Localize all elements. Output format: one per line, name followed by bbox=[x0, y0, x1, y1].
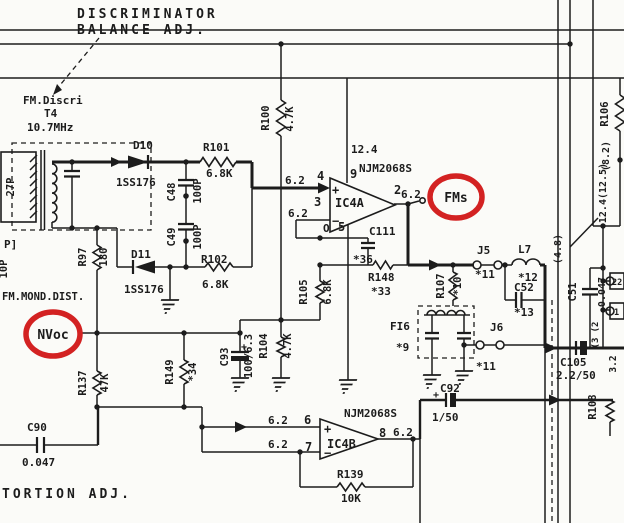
label-v-3-2: 3.2 bbox=[608, 355, 619, 372]
junction-dot bbox=[94, 404, 99, 409]
junction-dot bbox=[405, 201, 410, 206]
label-ic4a: IC4A bbox=[335, 196, 365, 210]
label-c52-val: *13 bbox=[514, 306, 534, 319]
label-r104: R104 bbox=[258, 333, 270, 358]
label-v-12-4: 12.4 bbox=[351, 143, 378, 156]
label-c48-val: 100P bbox=[192, 178, 204, 203]
arrow-icon bbox=[549, 395, 561, 406]
label-d10: D10 bbox=[133, 139, 153, 152]
arrow-icon bbox=[111, 157, 122, 167]
label-r148: R148 bbox=[368, 271, 395, 284]
label-c51: C51 bbox=[567, 283, 579, 302]
label-v-4-8: (4.8) bbox=[553, 234, 564, 264]
label-r105: R105 bbox=[298, 279, 310, 304]
junction-dot bbox=[278, 317, 283, 322]
junction-dot bbox=[450, 262, 455, 267]
label-plus-b: + bbox=[324, 422, 331, 436]
c92-plate-solid bbox=[450, 393, 456, 407]
label-minus-b: − bbox=[324, 446, 331, 460]
arrow-icon bbox=[429, 260, 441, 271]
d10-triangle bbox=[128, 156, 148, 169]
label-c111-val: *36 bbox=[353, 253, 373, 266]
l7-coil bbox=[512, 259, 540, 265]
schematic-page: DISCRIMINATORBALANCE ADJ.TORTION ADJ.FM.… bbox=[0, 0, 624, 523]
labels-layer: DISCRIMINATORBALANCE ADJ.TORTION ADJ.FM.… bbox=[0, 7, 622, 505]
junction-dot bbox=[94, 330, 99, 335]
label-c105-val: 2.2/50 bbox=[556, 369, 596, 382]
label-j6: J6 bbox=[490, 321, 504, 334]
schematic: DISCRIMINATORBALANCE ADJ.TORTION ADJ.FM.… bbox=[0, 0, 624, 523]
label-pin4: 4 bbox=[317, 169, 324, 183]
label-c93-val: 100/6.3 bbox=[243, 334, 255, 378]
junction-dots bbox=[69, 41, 622, 454]
label-r102-val: 6.8K bbox=[202, 278, 229, 291]
label-v-8-2: (8.2) bbox=[601, 141, 612, 171]
label-c90-val: 0.047 bbox=[22, 456, 55, 469]
label-r104-val: 4.7K bbox=[282, 333, 294, 359]
label-r149-val: *34 bbox=[187, 363, 199, 382]
resistor-r148-symbol bbox=[373, 261, 393, 269]
label-r108: R108 bbox=[587, 394, 599, 419]
label-marker-o: O bbox=[323, 222, 330, 235]
label-l7: L7 bbox=[518, 243, 531, 256]
resistor-r106-symbol bbox=[616, 95, 624, 131]
junction-dot bbox=[181, 404, 186, 409]
label-r139: R139 bbox=[337, 468, 364, 481]
label-pin5: 5 bbox=[338, 220, 345, 234]
label-pin9: 9 bbox=[350, 167, 357, 181]
ground-icon bbox=[157, 300, 179, 313]
ground-icon bbox=[227, 378, 249, 391]
arrow-icon bbox=[545, 343, 557, 354]
label-balance-adj: BALANCE ADJ. bbox=[77, 23, 207, 38]
label-d11-part: 1SS176 bbox=[124, 283, 164, 296]
label-v62-pin4: 6.2 bbox=[285, 174, 305, 187]
junction-dot bbox=[600, 307, 605, 312]
label-c92-val: 1/50 bbox=[432, 411, 459, 424]
label-pin7: 7 bbox=[305, 440, 312, 454]
t4-cap-plates bbox=[64, 171, 80, 177]
label-c52: C52 bbox=[514, 281, 534, 294]
junction-dot bbox=[297, 449, 302, 454]
label-t4: T4 bbox=[44, 107, 58, 120]
diode-d10 bbox=[128, 155, 148, 169]
junction-dot bbox=[167, 264, 172, 269]
label-v62-pin2: 6.2 bbox=[401, 188, 421, 201]
junction-dot bbox=[69, 159, 74, 164]
label-c49: C49 bbox=[166, 228, 178, 247]
label-r149: R149 bbox=[164, 359, 176, 384]
label-tortion-adj: TORTION ADJ. bbox=[2, 487, 132, 502]
label-r100: R100 bbox=[260, 105, 272, 130]
j5-circle-2 bbox=[494, 261, 502, 269]
label-c90: C90 bbox=[27, 421, 47, 434]
junction-dot bbox=[94, 225, 99, 230]
label-c92: C92 bbox=[440, 382, 460, 395]
label-njm-a: NJM2068S bbox=[359, 162, 412, 175]
label-pin8: 8 bbox=[379, 426, 386, 440]
junction-dot bbox=[600, 223, 605, 228]
label-c105: C105 bbox=[560, 356, 587, 369]
label-c93: C93 bbox=[219, 348, 231, 367]
label-v62-pin3: 6.2 bbox=[288, 207, 308, 220]
junction-dot bbox=[199, 424, 204, 429]
nvoc-highlight: NVoc bbox=[26, 312, 80, 356]
junction-dot bbox=[278, 41, 283, 46]
label-tab-1: 1 bbox=[614, 308, 619, 318]
label-d11: D11 bbox=[131, 248, 151, 261]
ground-icon bbox=[419, 375, 441, 388]
label-ic4b: IC4B bbox=[327, 437, 356, 451]
label-tab-22: 22 bbox=[612, 278, 622, 288]
label-fi6-val: *9 bbox=[396, 341, 409, 354]
junction-dot bbox=[317, 262, 322, 267]
label-c92-plus: + bbox=[433, 390, 439, 401]
ground-icon bbox=[268, 378, 290, 391]
junction-dot bbox=[567, 41, 572, 46]
label-discriminator-title: DISCRIMINATOR bbox=[77, 7, 218, 22]
label-c49-val: 100P bbox=[192, 224, 204, 249]
label-r137: R137 bbox=[77, 370, 89, 395]
label-v62-pin6: 6.2 bbox=[268, 414, 288, 427]
c111-plates bbox=[361, 243, 375, 248]
label-r97: R97 bbox=[77, 248, 89, 267]
junction-dot bbox=[183, 159, 188, 164]
label-j5: J5 bbox=[477, 244, 490, 257]
label-cap-10p: 10P bbox=[0, 260, 10, 279]
grounds bbox=[157, 300, 473, 393]
t4-winding bbox=[52, 164, 57, 222]
label-r100-val: 4.7K bbox=[284, 106, 296, 132]
c90-plates bbox=[37, 437, 44, 453]
label-pin3: 3 bbox=[314, 195, 321, 209]
label-freq: 10.7MHz bbox=[27, 121, 73, 134]
fms-signal-label: FMs bbox=[444, 191, 467, 206]
junction-dot bbox=[617, 157, 622, 162]
label-r102: R102 bbox=[201, 253, 228, 266]
d11-triangle bbox=[135, 261, 155, 274]
junction-dot bbox=[317, 235, 322, 240]
label-p-bracket: P] bbox=[4, 238, 17, 251]
junction-dot bbox=[600, 265, 605, 270]
label-r97-val: 180 bbox=[98, 248, 110, 267]
label-fi6: FI6 bbox=[390, 320, 410, 333]
label-r107-val: *10 bbox=[452, 277, 464, 296]
label-r139-val: 10K bbox=[341, 492, 361, 505]
resistor-r139-symbol bbox=[337, 483, 365, 491]
resistor-r108-symbol bbox=[606, 400, 614, 422]
j6-circle-1 bbox=[476, 341, 484, 349]
label-cap-27p: 27P bbox=[5, 178, 17, 197]
label-wire-2: (2 bbox=[591, 322, 601, 333]
junction-dot bbox=[502, 262, 507, 267]
label-r107: R107 bbox=[435, 273, 447, 298]
junction-dot bbox=[237, 330, 242, 335]
label-njm-b: NJM2068S bbox=[344, 407, 397, 420]
label-r105-val: 6.8K bbox=[322, 279, 334, 305]
label-v62-pin7: 6.2 bbox=[268, 438, 288, 451]
junction-dot bbox=[181, 330, 186, 335]
label-j6-val: *11 bbox=[476, 360, 496, 373]
diode-d11 bbox=[133, 260, 155, 274]
c48-polarity-blob bbox=[183, 193, 189, 199]
fi6-cap1-plates bbox=[425, 333, 439, 339]
label-r101: R101 bbox=[203, 141, 230, 154]
label-c93-plus: + bbox=[241, 342, 247, 353]
label-d10-part: 1SS176 bbox=[116, 176, 156, 189]
fms-highlight: FMs bbox=[430, 176, 482, 218]
label-pin6: 6 bbox=[304, 413, 311, 427]
label-r137-val: 47K bbox=[99, 373, 111, 393]
c105-plate-solid bbox=[580, 341, 587, 355]
label-r106: R106 bbox=[599, 101, 611, 126]
label-wire-3: (3 bbox=[591, 338, 601, 349]
junction-dot bbox=[183, 264, 188, 269]
label-plus-a: + bbox=[332, 183, 339, 197]
label-r148-val: *33 bbox=[371, 285, 391, 298]
label-fm-discri: FM.Discri bbox=[23, 94, 83, 107]
junction-dot bbox=[461, 342, 466, 347]
arrow-icon bbox=[235, 422, 247, 433]
c49-polarity-blob bbox=[183, 238, 189, 244]
junction-dot bbox=[69, 225, 74, 230]
label-j5-val: *11 bbox=[475, 268, 495, 281]
resistor-r101-symbol bbox=[200, 158, 236, 167]
label-c111: C111 bbox=[369, 225, 396, 238]
j6-circle-2 bbox=[496, 341, 504, 349]
ground-icon bbox=[335, 380, 357, 393]
fi6-cap2-plates bbox=[457, 333, 471, 339]
c51-plates bbox=[582, 289, 598, 295]
label-fm-mond-dist: FM.MOND.DIST. bbox=[2, 291, 84, 303]
leader-line bbox=[570, 218, 598, 247]
label-v62-pin8: 6.2 bbox=[393, 426, 413, 439]
nvoc-signal-label: NVoc bbox=[37, 328, 68, 343]
label-r101-val: 6.8K bbox=[206, 167, 233, 180]
signal-arrows bbox=[53, 84, 561, 433]
label-c51-val: 0.047 bbox=[597, 277, 608, 307]
arrow-icon bbox=[318, 183, 330, 194]
label-c48: C48 bbox=[166, 183, 178, 202]
